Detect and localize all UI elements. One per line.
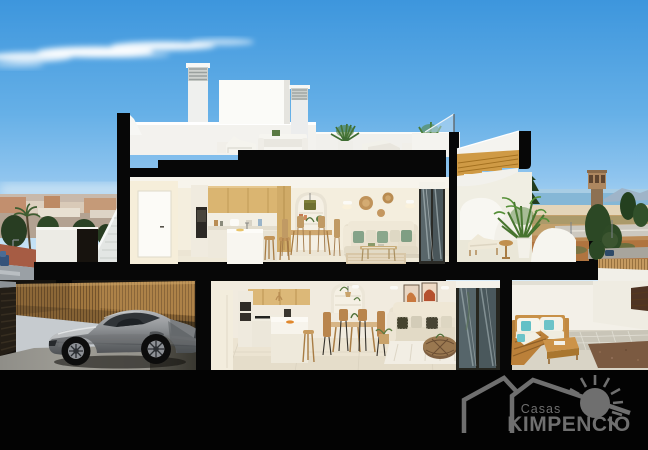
svg-text:KIMPENCIO: KIMPENCIO xyxy=(507,413,631,436)
